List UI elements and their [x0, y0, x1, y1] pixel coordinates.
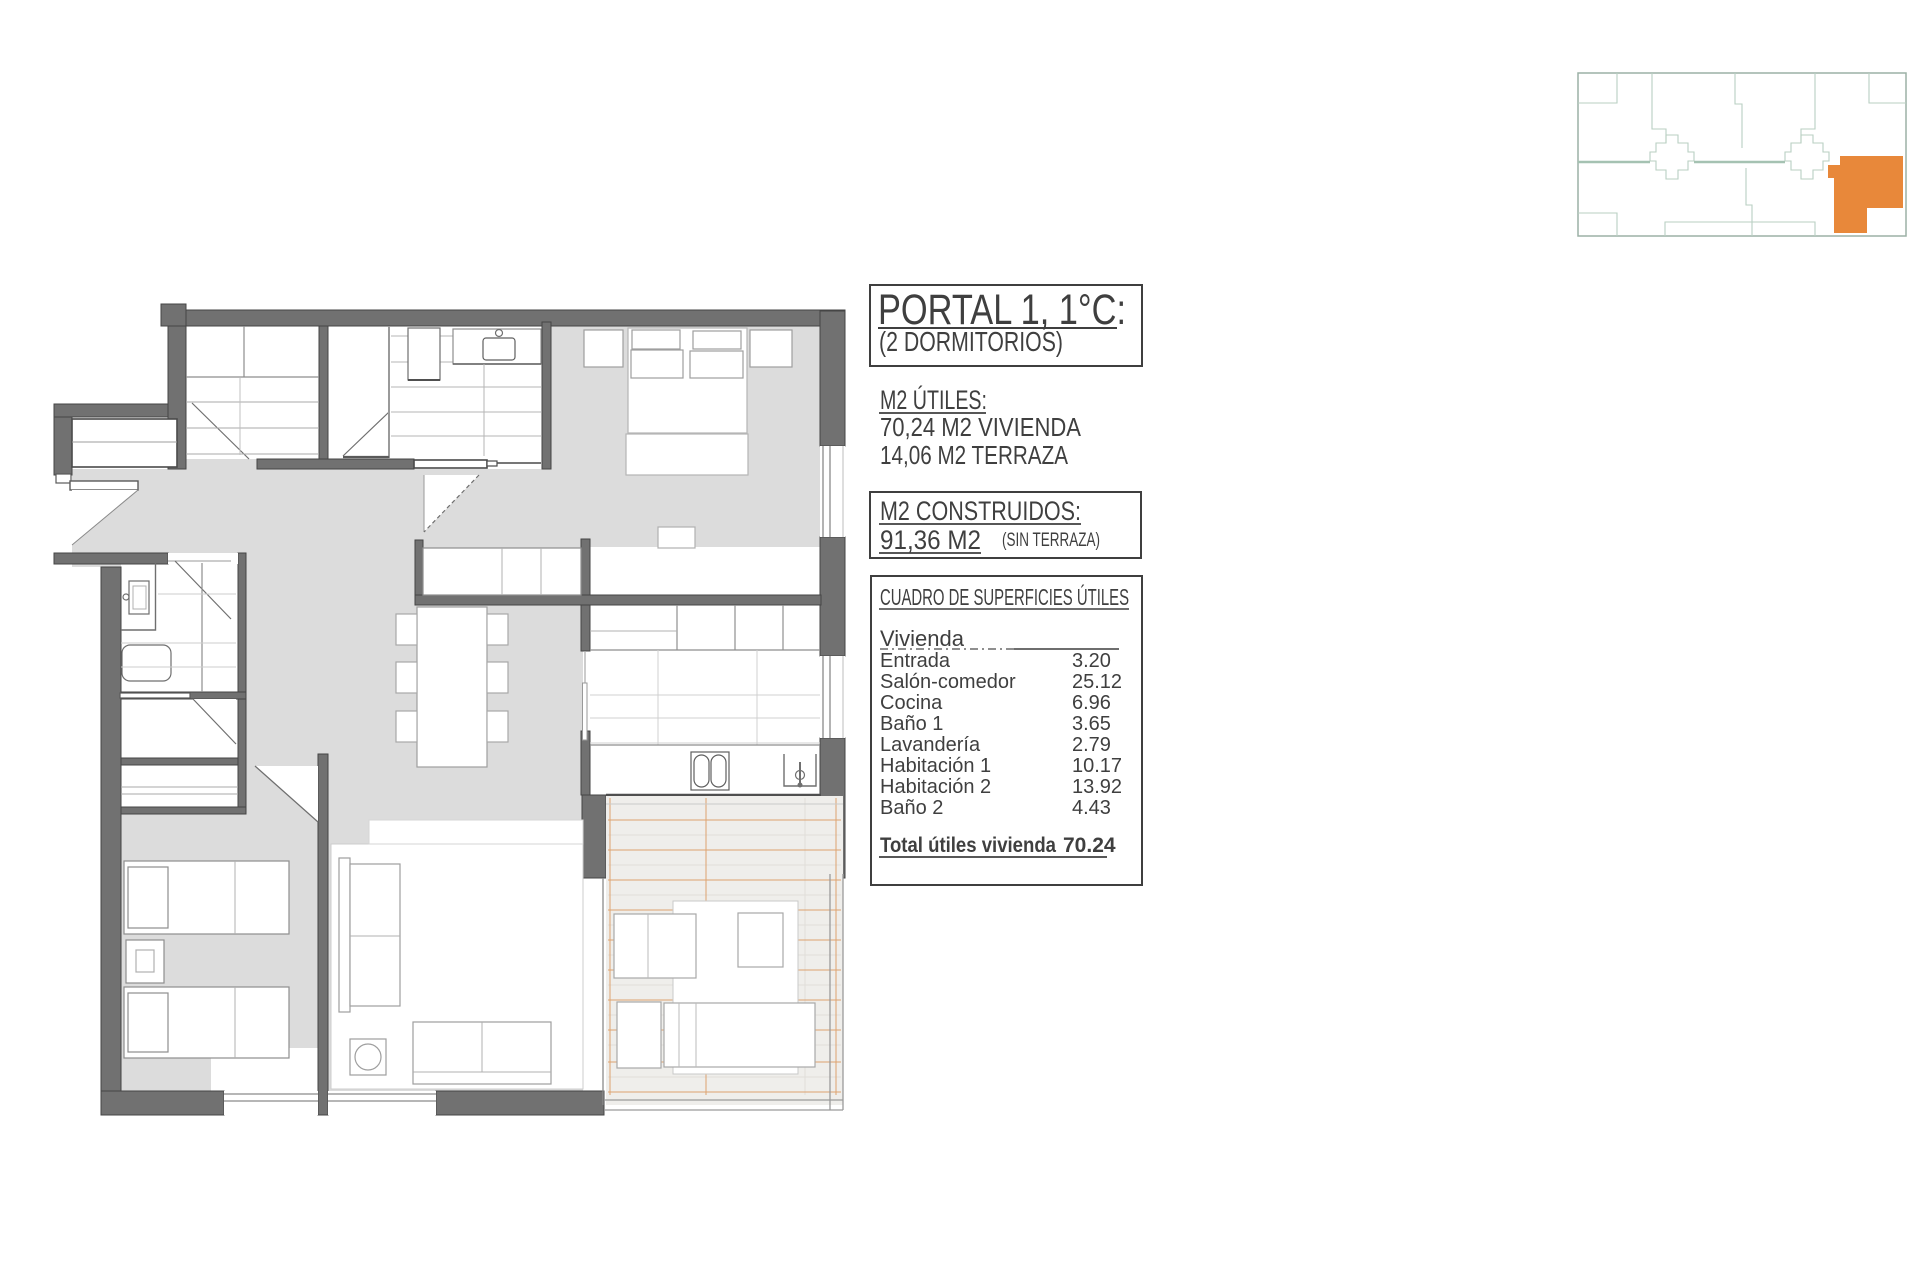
- svg-text:70.24: 70.24: [1063, 834, 1116, 857]
- svg-text:13.92: 13.92: [1072, 776, 1122, 798]
- svg-text:Habitación 1: Habitación 1: [880, 755, 991, 777]
- svg-text:(SIN TERRAZA): (SIN TERRAZA): [1002, 530, 1100, 551]
- svg-text:CUADRO DE SUPERFICIES ÚTILES: CUADRO DE SUPERFICIES ÚTILES: [880, 584, 1129, 610]
- svg-text:Entrada: Entrada: [880, 650, 951, 672]
- svg-text:Habitación 2: Habitación 2: [880, 776, 991, 798]
- svg-text:Total útiles vivienda: Total útiles vivienda: [880, 834, 1056, 857]
- svg-text:Lavandería: Lavandería: [880, 734, 981, 756]
- svg-text:Baño 1: Baño 1: [880, 713, 943, 735]
- svg-text:(2 DORMITORIOS): (2 DORMITORIOS): [879, 326, 1063, 357]
- svg-text:3.20: 3.20: [1072, 650, 1111, 672]
- svg-text:4.43: 4.43: [1072, 797, 1111, 819]
- svg-text:Cocina: Cocina: [880, 692, 943, 714]
- svg-text:10.17: 10.17: [1072, 755, 1122, 777]
- svg-text:70,24 M2 VIVIENDA: 70,24 M2 VIVIENDA: [880, 412, 1082, 442]
- svg-text:6.96: 6.96: [1072, 692, 1111, 714]
- svg-text:14,06 M2 TERRAZA: 14,06 M2 TERRAZA: [880, 440, 1069, 470]
- svg-text:Vivienda: Vivienda: [880, 626, 965, 651]
- svg-text:M2 CONSTRUIDOS:: M2 CONSTRUIDOS:: [880, 496, 1081, 526]
- svg-text:3.65: 3.65: [1072, 713, 1111, 735]
- svg-text:M2 ÚTILES:: M2 ÚTILES:: [880, 384, 987, 415]
- svg-text:91,36 M2: 91,36 M2: [880, 525, 981, 555]
- svg-text:2.79: 2.79: [1072, 734, 1111, 756]
- svg-text:Salón-comedor: Salón-comedor: [880, 671, 1016, 693]
- svg-text:25.12: 25.12: [1072, 671, 1122, 693]
- svg-text:Baño 2: Baño 2: [880, 797, 943, 819]
